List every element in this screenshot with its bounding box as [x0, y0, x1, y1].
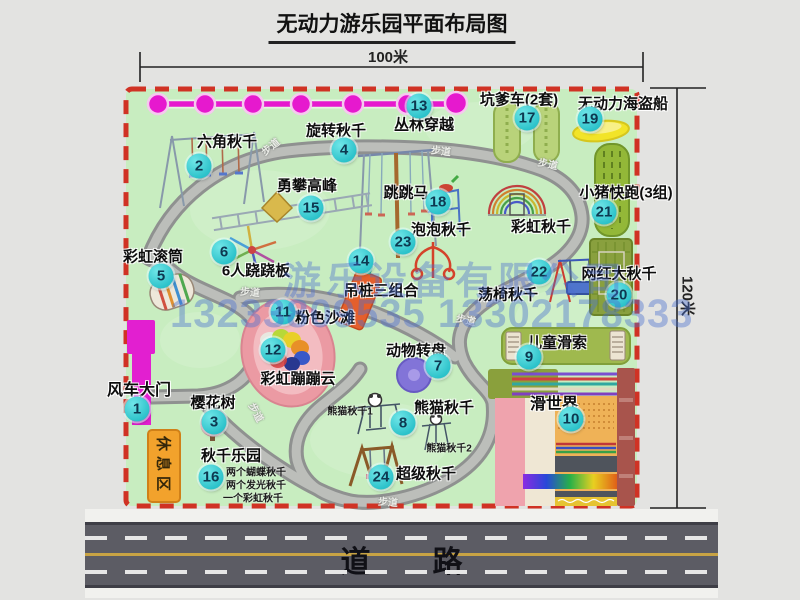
width-dimension-label: 100米 [368, 46, 408, 67]
rest-area-label: 休息区 [154, 436, 175, 496]
piggy-run-track-icon [595, 144, 629, 236]
kids-zipline-pad-icon [502, 328, 630, 364]
height-dimension-label: 120米 [678, 276, 699, 316]
road-label: 道路 [85, 537, 718, 581]
slide-world-icon [488, 368, 635, 506]
playground-layout-map: 无动力游乐园平面布局图 100米 120米 休息区 风车大门1六角秋千2樱花树3… [0, 0, 800, 600]
road: 道路 [85, 522, 718, 588]
big-swing-pad-icon [590, 239, 632, 315]
animal-turntable-icon [397, 358, 431, 392]
page-title: 无动力游乐园平面布局图 [269, 8, 516, 44]
